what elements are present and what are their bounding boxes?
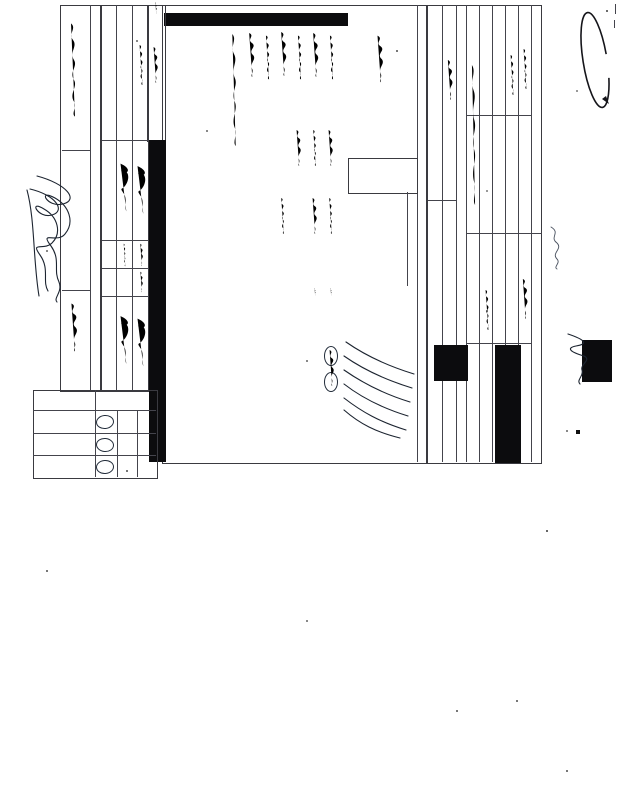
page-marker-icon	[576, 430, 580, 434]
handwriting-scribble	[445, 40, 455, 120]
handwriting-scribble	[468, 60, 479, 210]
date-handwriting	[326, 128, 335, 168]
date-handwriting	[310, 196, 319, 236]
sample-id-handwriting	[310, 30, 321, 80]
sample-id-handwriting	[278, 30, 289, 78]
date-handwriting	[68, 300, 80, 355]
handwriting-scribble	[520, 38, 530, 100]
scan-artifact	[615, 4, 616, 14]
section-d-label	[421, 8, 426, 10]
sample-conditions-table	[33, 390, 157, 478]
date-handwriting	[326, 196, 335, 236]
handwriting-scribble	[545, 225, 563, 271]
sample-id-handwriting	[246, 30, 257, 80]
signature-scribble	[117, 145, 131, 230]
scanned-coc-page	[0, 0, 618, 800]
redaction-bar	[164, 13, 348, 26]
section-c-label	[460, 8, 465, 10]
sampler-name-handwriting	[66, 20, 80, 120]
signature-scribble	[134, 145, 148, 235]
signature-scribble	[117, 300, 131, 380]
handwriting-scribble	[507, 40, 517, 110]
scan-artifact	[151, 2, 161, 14]
section-a-label	[535, 8, 540, 10]
comments-handwriting	[151, 30, 160, 100]
scan-artifact	[614, 20, 615, 28]
analysis-header-scribbles	[342, 340, 422, 440]
sample-id-handwriting	[294, 30, 305, 85]
comments-handwriting	[136, 30, 146, 100]
title-block	[589, 178, 590, 470]
analysis-handwriting	[327, 348, 336, 388]
redaction-box	[434, 345, 468, 381]
matrix-codes-legend	[348, 158, 418, 194]
sample-id-handwriting	[228, 30, 240, 150]
date-handwriting	[310, 128, 319, 168]
section-b-label	[535, 236, 540, 238]
logo-swoosh-icon	[572, 8, 612, 112]
date-handwriting	[137, 243, 146, 267]
date-handwriting	[294, 128, 303, 168]
overflow-signature-scribble	[20, 185, 68, 295]
page-number	[574, 430, 580, 434]
sample-id-handwriting	[262, 30, 273, 85]
handwriting-scribble	[482, 280, 492, 340]
signature-scribble	[134, 300, 148, 385]
time-handwriting	[137, 271, 146, 293]
handwriting-scribble	[520, 265, 530, 333]
handwriting-scribble	[374, 34, 386, 84]
count-handwriting	[311, 288, 319, 296]
rotated-document	[0, 0, 618, 800]
date-handwriting	[120, 243, 129, 267]
sample-id-handwriting	[326, 30, 337, 85]
handwriting-scribble	[564, 330, 590, 388]
redaction-box	[495, 345, 521, 463]
count-handwriting	[327, 288, 335, 296]
date-handwriting	[278, 196, 287, 236]
logo	[550, 8, 612, 118]
